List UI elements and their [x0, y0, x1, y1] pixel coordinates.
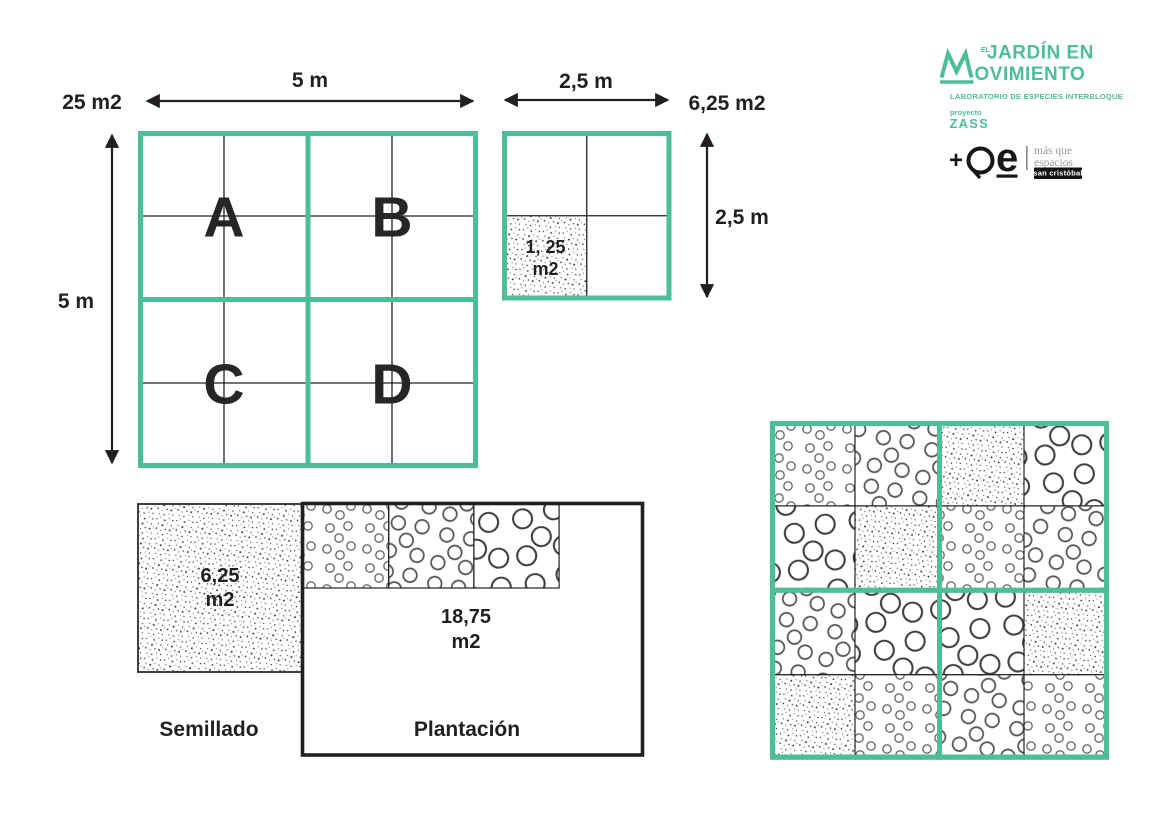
width-dimension-label: 5 m	[292, 69, 328, 92]
bottom-diagram: 6,25 m2 Semillado 18,75 m2 Plantación	[138, 504, 643, 756]
quadrant-label-c: C	[203, 353, 244, 417]
partner-tag-line2: espacios	[1034, 157, 1073, 169]
partner-tag-line1: más que	[1034, 145, 1072, 157]
plant-area-line1: 18,75	[441, 606, 491, 628]
small-cell-area-line2: m2	[532, 259, 558, 279]
pattern-cell-2-2	[940, 590, 1025, 674]
seed-area-line2: m2	[206, 589, 235, 611]
seed-area-line1: 6,25	[201, 565, 240, 587]
area-dimension-label: 25 m2	[62, 91, 122, 114]
project-name: ZASS	[950, 116, 989, 131]
brand-line1: JARDÍN EN	[987, 42, 1094, 64]
small-width-dimension-label: 2,5 m	[559, 70, 613, 93]
big-square-plot: A B C D	[141, 134, 476, 466]
pattern-grid	[770, 421, 1109, 759]
partner-badge-text: san cristóbal	[1033, 169, 1082, 178]
plant-area-line2: m2	[452, 631, 481, 653]
height-dimension-label: 5 m	[58, 290, 94, 313]
small-cell-area-line1: 1, 25	[525, 237, 565, 257]
plant-caption: Plantación	[414, 718, 520, 741]
pattern-cell-3-2	[940, 675, 1025, 759]
pattern-cell-2-1	[855, 590, 940, 674]
plant-strip-cells	[304, 504, 560, 589]
quadrant-label-b: B	[371, 186, 412, 250]
brand-line2: OVIMIENTO	[975, 64, 1086, 85]
pattern-cell-0-0	[771, 422, 856, 506]
pattern-cell-0-2	[940, 422, 1025, 506]
quadrant-label-a: A	[203, 186, 244, 250]
pattern-cell-1-2	[940, 506, 1025, 590]
pattern-cell-0-1	[855, 422, 940, 506]
e-underline	[997, 175, 1018, 178]
small-square-plot: 1, 25 m2	[505, 134, 670, 299]
strip-cell-0	[304, 504, 389, 589]
small-height-dimension-label: 2,5 m	[715, 206, 769, 229]
strip-cell-1	[389, 504, 474, 589]
seed-caption: Semillado	[159, 718, 258, 741]
seed-square-stipple	[138, 504, 302, 672]
diagram-svg: A B C D 5 m 25 m2 5 m 1, 25 m2 2,5 m 6,2…	[0, 0, 1169, 826]
pattern-cell-3-1	[855, 675, 940, 759]
pattern-cell-2-3	[1024, 590, 1109, 674]
garden-plan-poster: A B C D 5 m 25 m2 5 m 1, 25 m2 2,5 m 6,2…	[0, 0, 1169, 826]
pattern-cell-3-3	[1024, 675, 1109, 759]
pattern-cell-1-3	[1024, 506, 1109, 590]
strip-cell-2	[474, 504, 559, 589]
pattern-cell-2-0	[771, 590, 856, 674]
quadrant-label-d: D	[371, 353, 412, 417]
pattern-cell-1-1	[855, 506, 940, 590]
small-area-dimension-label: 6,25 m2	[688, 92, 765, 115]
brand-tagline: LABORATORIO DE ESPECIES INTERBLOQUE	[950, 92, 1123, 101]
plus-icon: +	[949, 147, 963, 174]
pattern-cell-1-0	[771, 506, 856, 590]
e-glyph: e	[996, 136, 1018, 180]
partner-divider	[1026, 146, 1028, 170]
pattern-cell-3-0	[771, 675, 856, 759]
pattern-cell-0-3	[1024, 422, 1109, 506]
